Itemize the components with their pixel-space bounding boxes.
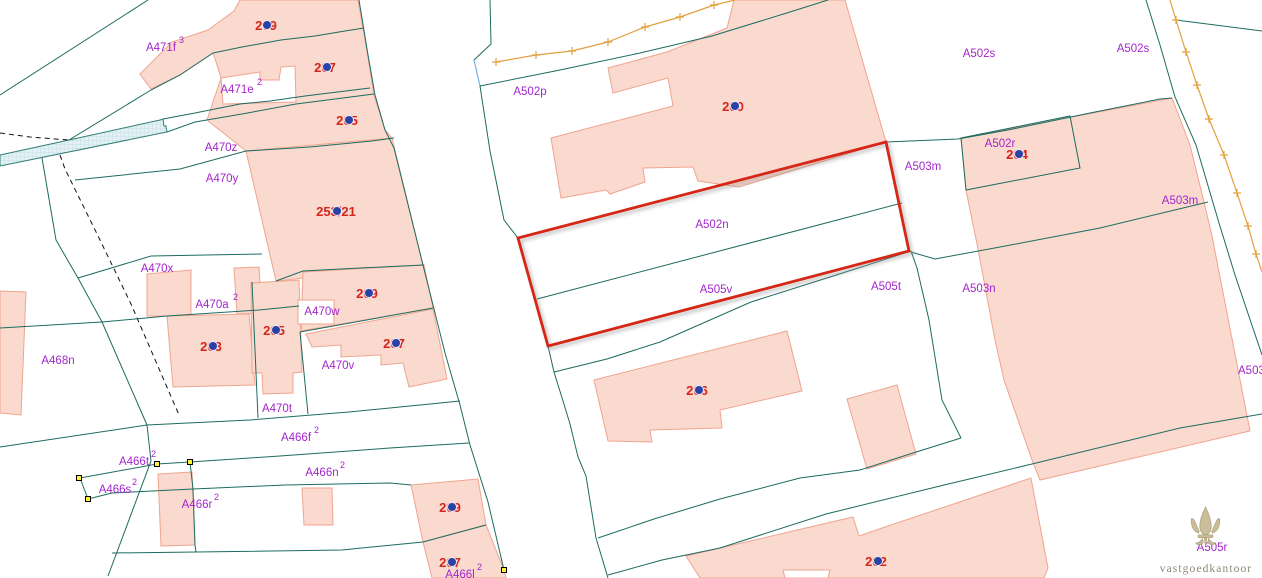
svg-text:2: 2 — [214, 492, 219, 502]
svg-text:2: 2 — [314, 425, 319, 435]
svg-text:A470x: A470x — [141, 263, 174, 275]
svg-text:2: 2 — [233, 292, 238, 302]
svg-text:A505v: A505v — [700, 284, 733, 296]
svg-text:A503n: A503n — [962, 283, 995, 295]
svg-text:2: 2 — [340, 460, 345, 470]
svg-text:A502p: A502p — [513, 86, 546, 98]
svg-text:A471e: A471e — [220, 84, 253, 96]
svg-text:A470v: A470v — [322, 360, 355, 372]
svg-text:A471f: A471f — [146, 42, 177, 54]
svg-text:A503x: A503x — [1238, 365, 1262, 377]
svg-text:A470z: A470z — [205, 142, 238, 154]
svg-text:A470t: A470t — [262, 403, 293, 415]
svg-text:A466s: A466s — [99, 484, 132, 496]
svg-text:3: 3 — [179, 35, 184, 45]
svg-text:A502s: A502s — [1117, 43, 1150, 55]
svg-text:2: 2 — [151, 449, 156, 459]
svg-text:A466r: A466r — [182, 499, 213, 511]
svg-text:2: 2 — [477, 562, 482, 572]
svg-text:A470y: A470y — [206, 173, 239, 185]
svg-text:A502s: A502s — [963, 48, 996, 60]
svg-text:A466l: A466l — [445, 569, 474, 578]
svg-text:A503m: A503m — [905, 161, 941, 173]
svg-text:A466t: A466t — [119, 456, 150, 468]
svg-text:2: 2 — [257, 77, 262, 87]
svg-text:A470w: A470w — [304, 306, 340, 318]
svg-text:A466f: A466f — [281, 432, 312, 444]
svg-text:A470a: A470a — [195, 299, 229, 311]
svg-text:A503m: A503m — [1162, 195, 1198, 207]
svg-text:2: 2 — [132, 477, 137, 487]
svg-text:A502n: A502n — [695, 219, 728, 231]
svg-text:A466n: A466n — [305, 467, 338, 479]
svg-text:A468n: A468n — [41, 355, 74, 367]
svg-text:vastgoedkantoor: vastgoedkantoor — [1160, 563, 1253, 575]
svg-text:A505t: A505t — [871, 281, 902, 293]
